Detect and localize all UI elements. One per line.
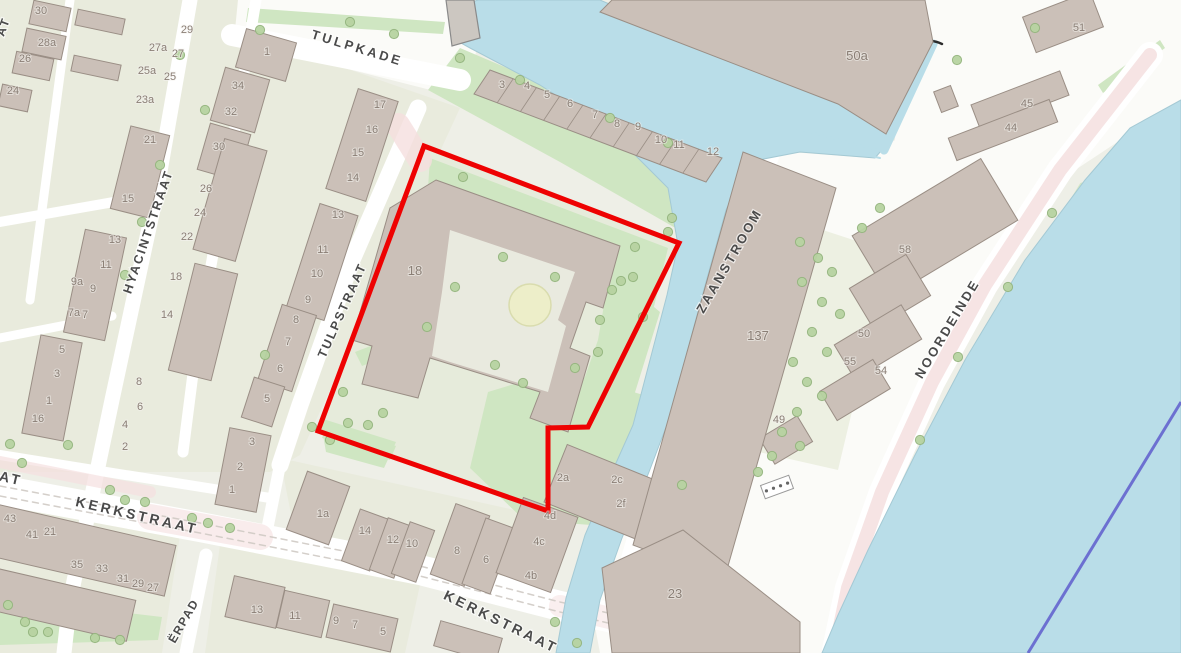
house-number: 26 — [200, 183, 212, 195]
house-number: 4c — [533, 536, 545, 548]
house-number: 43 — [4, 513, 16, 525]
house-number: 11 — [100, 259, 111, 271]
house-number: 1a — [317, 508, 330, 520]
house-number: 24 — [7, 85, 19, 97]
house-number: 26 — [19, 53, 31, 65]
tree-icon — [915, 435, 924, 444]
courtyard-circle-feature — [509, 284, 551, 326]
tree-icon — [115, 635, 124, 644]
tree-icon — [630, 242, 639, 251]
house-number: 55 — [844, 356, 856, 368]
house-number: 35 — [71, 559, 83, 571]
house-number: 23a — [136, 94, 155, 106]
house-number: 6 — [137, 401, 143, 413]
house-number: 27 — [172, 48, 184, 60]
house-number: 2f — [616, 498, 626, 510]
house-number: 34 — [232, 80, 244, 92]
tree-icon — [363, 420, 372, 429]
tree-icon — [795, 441, 804, 450]
house-number: 8 — [614, 118, 620, 130]
tree-icon — [260, 350, 269, 359]
house-number: 31 — [117, 573, 129, 585]
tree-icon — [677, 480, 686, 489]
house-number: 11 — [317, 244, 328, 256]
tree-icon — [1030, 23, 1039, 32]
house-number: 3 — [249, 436, 255, 448]
house-number: 9 — [305, 294, 311, 306]
house-number: 137 — [747, 328, 769, 343]
house-number: 13 — [332, 209, 344, 221]
house-number: 5 — [59, 344, 65, 356]
house-number: 30 — [213, 141, 225, 153]
house-number: 4 — [524, 80, 530, 92]
bollard-dot — [786, 482, 789, 485]
tree-icon — [338, 387, 347, 396]
house-number: 9a — [71, 276, 84, 288]
house-number: 3 — [499, 79, 505, 91]
tree-icon — [817, 391, 826, 400]
house-number: 7 — [82, 309, 88, 321]
house-number: 2c — [611, 474, 623, 486]
tree-icon — [63, 440, 72, 449]
tree-icon — [225, 523, 234, 532]
tree-icon — [28, 627, 37, 636]
bridge — [446, 0, 480, 46]
tree-icon — [827, 267, 836, 276]
house-number: 16 — [366, 124, 378, 136]
house-number: 54 — [875, 365, 887, 377]
house-number: 32 — [225, 106, 237, 118]
tree-icon — [389, 29, 398, 38]
house-number: 30 — [35, 5, 47, 17]
house-number: 5 — [380, 626, 386, 638]
house-number: 10 — [655, 134, 667, 146]
house-number: 44 — [1005, 122, 1017, 134]
tree-icon — [788, 357, 797, 366]
house-number: 6 — [483, 554, 489, 566]
tree-icon — [490, 360, 499, 369]
tree-icon — [43, 627, 52, 636]
house-number: 8 — [454, 545, 460, 557]
tree-icon — [807, 327, 816, 336]
tree-icon — [1047, 208, 1056, 217]
tree-icon — [518, 378, 527, 387]
house-number: 4 — [122, 419, 128, 431]
house-number: 5 — [544, 89, 550, 101]
house-number: 12 — [387, 534, 399, 546]
house-number: 7 — [285, 336, 291, 348]
tree-icon — [140, 497, 149, 506]
map-svg[interactable]: 3028a26242927a2725a2523a2113432301513119… — [0, 0, 1181, 653]
house-number: 12 — [707, 146, 719, 158]
tree-icon — [817, 297, 826, 306]
house-number: 29 — [132, 578, 144, 590]
tree-icon — [203, 518, 212, 527]
tree-icon — [570, 363, 579, 372]
tree-icon — [90, 633, 99, 642]
house-number: 9 — [635, 121, 641, 133]
house-number: 7a — [68, 307, 81, 319]
house-number: 10 — [406, 538, 418, 550]
tree-icon — [813, 253, 822, 262]
tree-icon — [422, 322, 431, 331]
house-number: 2a — [557, 472, 570, 484]
house-number: 21 — [144, 134, 156, 146]
house-number: 51 — [1073, 22, 1085, 34]
house-number: 14 — [161, 309, 173, 321]
tree-icon — [458, 172, 467, 181]
house-number: 2 — [237, 461, 243, 473]
tree-icon — [550, 272, 559, 281]
tree-icon — [792, 407, 801, 416]
house-number: 50 — [858, 328, 870, 340]
tree-icon — [1003, 282, 1012, 291]
tree-icon — [875, 203, 884, 212]
bollard-dot — [779, 484, 782, 487]
house-number: 16 — [32, 413, 44, 425]
house-number: 18 — [170, 271, 182, 283]
tree-icon — [343, 418, 352, 427]
house-number: 11 — [673, 139, 684, 151]
house-number: 4d — [544, 510, 556, 522]
tree-icon — [767, 451, 776, 460]
house-number: 24 — [194, 207, 206, 219]
tree-icon — [795, 237, 804, 246]
house-number: 33 — [96, 563, 108, 575]
house-number: 2 — [122, 441, 128, 453]
house-number: 11 — [289, 610, 300, 622]
house-number: 22 — [181, 231, 193, 243]
tree-icon — [498, 252, 507, 261]
house-number: 9 — [90, 283, 96, 295]
house-number: 5 — [264, 393, 270, 405]
house-number: 10 — [311, 268, 323, 280]
tree-icon — [345, 17, 354, 26]
tree-icon — [802, 377, 811, 386]
map-canvas[interactable]: 3028a26242927a2725a2523a2113432301513119… — [0, 0, 1181, 653]
tree-icon — [255, 25, 264, 34]
tree-icon — [572, 638, 581, 647]
house-number: 7 — [592, 109, 598, 121]
tree-icon — [607, 285, 616, 294]
bollard-dot — [765, 489, 768, 492]
tree-icon — [5, 439, 14, 448]
house-number: 28a — [38, 37, 57, 49]
tree-icon — [450, 282, 459, 291]
tree-icon — [3, 600, 12, 609]
house-number: 4b — [525, 570, 537, 582]
tree-icon — [200, 105, 209, 114]
tree-icon — [378, 408, 387, 417]
tree-icon — [753, 467, 762, 476]
house-number: 8 — [136, 376, 142, 388]
house-number: 25 — [164, 71, 176, 83]
house-number: 25a — [138, 65, 157, 77]
house-number: 13 — [109, 234, 121, 246]
house-number: 27 — [147, 582, 159, 594]
tree-icon — [857, 223, 866, 232]
house-number: 17 — [374, 99, 386, 111]
house-number: 1 — [229, 484, 235, 496]
tree-icon — [595, 315, 604, 324]
house-number: 8 — [293, 314, 299, 326]
house-number: 6 — [277, 363, 283, 375]
tree-icon — [550, 617, 559, 626]
house-number: 45 — [1021, 98, 1033, 110]
tree-icon — [822, 347, 831, 356]
bollard-dot — [772, 487, 775, 490]
house-number: 15 — [122, 193, 134, 205]
house-number: 9 — [333, 615, 339, 627]
house-number: 41 — [26, 529, 38, 541]
tree-icon — [628, 272, 637, 281]
tree-icon — [797, 277, 806, 286]
house-number: 1 — [264, 46, 270, 58]
house-number: 14 — [347, 172, 359, 184]
house-number: 18 — [408, 263, 422, 278]
house-number: 50a — [846, 48, 868, 63]
tree-icon — [307, 422, 316, 431]
tree-icon — [952, 55, 961, 64]
tree-icon — [616, 276, 625, 285]
tree-icon — [17, 458, 26, 467]
tree-icon — [953, 352, 962, 361]
house-number: 29 — [181, 24, 193, 36]
house-number: 15 — [352, 147, 364, 159]
house-number: 6 — [567, 98, 573, 110]
tree-icon — [835, 309, 844, 318]
house-number: 23 — [668, 586, 682, 601]
tree-icon — [455, 53, 464, 62]
house-number: 58 — [899, 244, 911, 256]
house-number: 27a — [149, 42, 168, 54]
tree-icon — [667, 213, 676, 222]
tree-icon — [105, 485, 114, 494]
house-number: 7 — [352, 619, 358, 631]
tree-icon — [20, 617, 29, 626]
tree-icon — [777, 427, 786, 436]
tree-icon — [593, 347, 602, 356]
house-number: 1 — [46, 395, 52, 407]
house-number: 3 — [54, 368, 60, 380]
house-number: 13 — [251, 604, 263, 616]
house-number: 14 — [359, 525, 371, 537]
house-number: 21 — [44, 526, 56, 538]
house-number: 49 — [773, 414, 785, 426]
